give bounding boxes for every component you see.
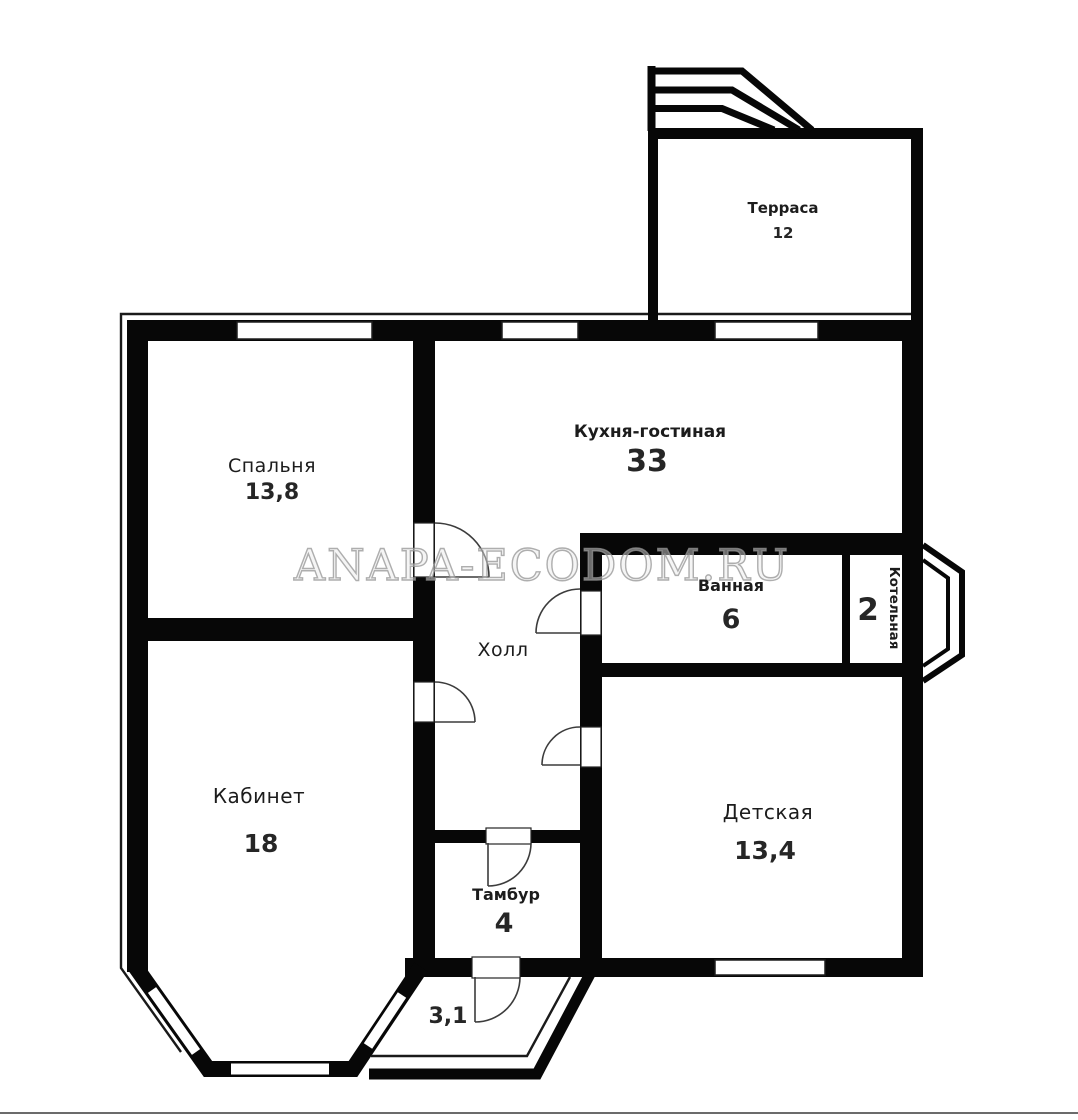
room-area-kitchen-living: 33 (626, 444, 668, 479)
room-label-bedroom: Спальня (228, 455, 316, 477)
vestibule-door-opening (486, 828, 531, 844)
room-area-vestibule: 4 (495, 908, 514, 939)
room-label-vestibule: Тамбур (472, 885, 540, 904)
floor-plan: ANAPA-ECODOM.RU Терраса 12 Спальня 13,8 … (0, 0, 1078, 1120)
terrace-wall-left (648, 128, 658, 322)
bedroom-window (237, 322, 372, 339)
room-label-kitchen-living: Кухня-гостиная (574, 422, 726, 442)
wall-bathroom-bottom (580, 663, 923, 677)
wall-right (902, 320, 923, 977)
room-label-boiler: Котельная (886, 567, 902, 650)
kitchen-window (502, 322, 578, 339)
terrace-wall-top (648, 128, 923, 139)
room-label-office: Кабинет (213, 784, 305, 808)
children-door-opening (581, 727, 601, 767)
room-label-children: Детская (723, 800, 813, 824)
children-window (715, 960, 825, 975)
terrace-doorway (715, 322, 818, 339)
room-area-porch: 3,1 (429, 1004, 468, 1029)
room-label-terrace: Терраса (747, 199, 818, 217)
wall-bathroom-boiler (842, 555, 850, 663)
room-label-bathroom: Ванная (698, 576, 764, 595)
office-door-opening (414, 682, 434, 722)
room-label-hall: Холл (478, 639, 529, 661)
room-area-office: 18 (244, 829, 279, 858)
room-area-bathroom: 6 (722, 604, 741, 635)
bathroom-door-opening (581, 591, 601, 635)
room-area-terrace: 12 (773, 224, 794, 242)
wall-left (127, 320, 148, 972)
room-area-bedroom: 13,8 (245, 480, 299, 505)
room-area-children: 13,4 (734, 836, 796, 865)
floor-plan-drawing: ANAPA-ECODOM.RU Терраса 12 Спальня 13,8 … (0, 0, 1078, 1120)
terrace-wall-right (911, 128, 923, 322)
wall-bedroom-office (148, 618, 415, 641)
room-area-boiler: 2 (857, 592, 879, 628)
wall-center-vertical (413, 340, 435, 977)
porch-door-opening (472, 957, 520, 978)
